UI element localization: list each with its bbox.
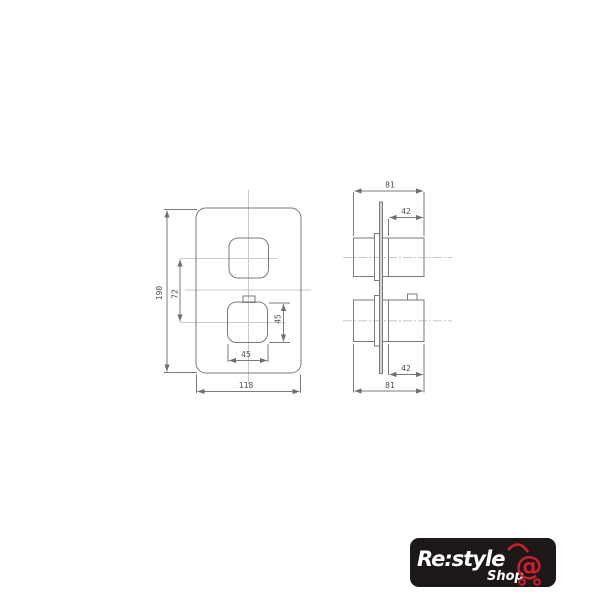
dim-label-depth-top: 81: [385, 181, 395, 190]
wall-plate-profile: [380, 202, 383, 374]
logo-brand-text: Re:style: [417, 547, 504, 571]
product-dimension-sheet: 190 72 45 45 118: [0, 0, 600, 600]
cart-at-icon: @: [503, 539, 555, 586]
front-view: 190 72 45 45 118: [155, 190, 311, 393]
restyle-shop-logo: Re:style Shop @: [410, 538, 556, 587]
dim-label-knob-width: 45: [241, 350, 251, 359]
cart-wheel-right: [534, 579, 540, 585]
knob-lever-tab-side: [408, 294, 418, 300]
at-symbol: @: [516, 551, 543, 582]
dim-label-depth-bottom: 81: [385, 381, 395, 390]
dim-label-plate-height: 190: [155, 286, 164, 301]
dim-label-knob-spacing: 72: [171, 289, 180, 299]
dim-label-knob-depth-top: 42: [401, 207, 411, 216]
side-view: 81 42 42 81: [343, 181, 452, 393]
dim-label-knob-depth-bottom: 42: [401, 364, 411, 373]
technical-drawing: 190 72 45 45 118: [0, 0, 600, 600]
dim-label-plate-width: 118: [239, 381, 254, 390]
dim-label-knob-height: 45: [274, 314, 283, 324]
cart-wheel-left: [519, 579, 525, 585]
